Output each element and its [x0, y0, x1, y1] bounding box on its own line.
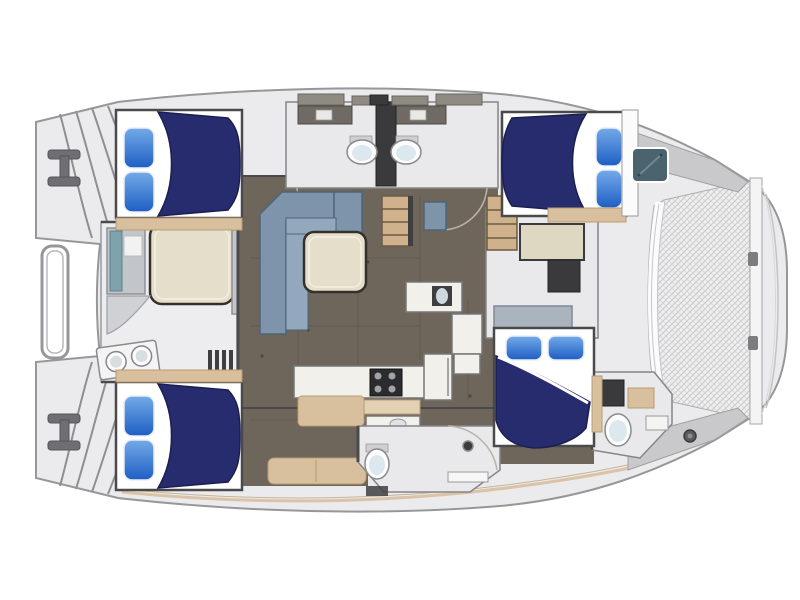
stern-davit-ladder [42, 246, 68, 358]
bed-foot-shelf [116, 370, 242, 382]
heads-divider-wall [376, 102, 396, 186]
toilet-bottom-right [605, 414, 631, 446]
shower-control [463, 441, 473, 451]
bed-aft-bottom-cabin [116, 370, 242, 490]
pillow [596, 170, 622, 208]
screenshot-canvas [0, 0, 800, 600]
galley-lower-counter [294, 366, 428, 398]
nav-instrument [548, 260, 580, 292]
bed-foot-shelf [116, 218, 242, 230]
shower-bench [448, 472, 488, 482]
pillow [596, 128, 622, 166]
galley-cabinet [452, 314, 482, 354]
bow-crossbeam [748, 178, 762, 424]
toilet-bottom-center [365, 444, 389, 479]
pillow [124, 440, 154, 480]
pillow [506, 336, 542, 360]
galley-stove [370, 369, 402, 396]
cabin-window [632, 148, 668, 182]
cockpit-table [150, 224, 234, 304]
companionway-steps-left [382, 196, 413, 246]
catamaran-floor-plan [0, 0, 800, 600]
nav-desk [520, 224, 584, 260]
bed-aft-top-cabin [116, 110, 242, 230]
deck-winch-center [688, 434, 693, 439]
pillow [124, 172, 154, 212]
salon-table [304, 232, 366, 292]
cockpit-cushion-teal [110, 231, 122, 291]
bed-forward-top-cabin [502, 112, 626, 222]
bed-forward-bottom-cabin [494, 328, 602, 448]
pillow [548, 336, 584, 360]
pillow [124, 396, 154, 436]
bottom-aft-bathroom [358, 426, 500, 496]
bed-side-shelf [592, 376, 602, 432]
pillow [124, 128, 154, 168]
salon-stool [424, 202, 446, 230]
bed-foot-shelf [548, 208, 626, 222]
